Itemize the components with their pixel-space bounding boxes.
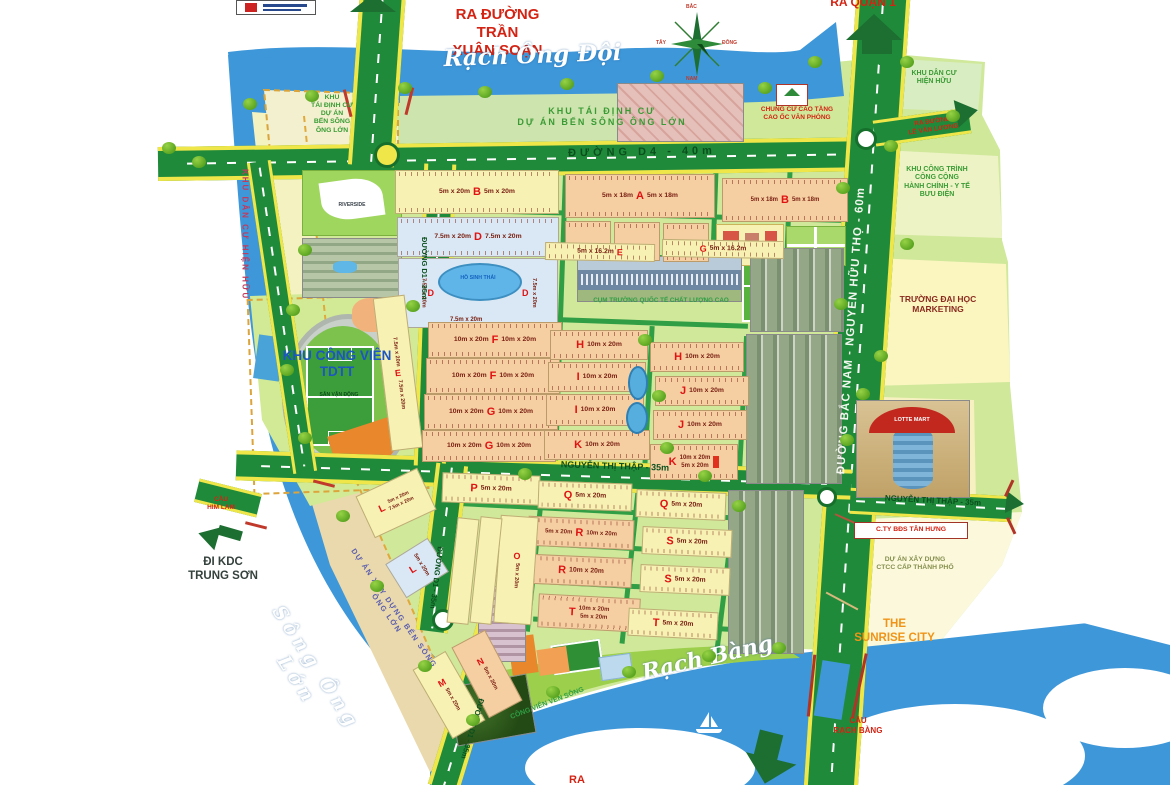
block-R1: 5m x 20mR10m x 20m xyxy=(527,516,634,551)
compass-south-label: NAM xyxy=(686,76,697,82)
tree-icon xyxy=(560,78,574,90)
zone-tdtt-label: KHU CÔNG VIÊN TDTT xyxy=(258,348,416,380)
block-dim: 10m x 20m xyxy=(454,337,489,344)
block-G2: 10m x 20mG10m x 20m xyxy=(422,430,556,462)
block-E-strip: 5m x 16.2mE xyxy=(545,242,655,262)
tree-icon xyxy=(280,364,294,376)
block-Q1: Q5m x 20m xyxy=(538,480,633,511)
block-letter: O xyxy=(513,552,521,561)
block-R2: R10m x 20m xyxy=(529,554,632,588)
block-dim: 5m x 20m xyxy=(439,189,470,196)
zone-resettle-small-label: KHU TÁI ĐỊNH CƯ DỰ ÁN BẾN SÔNG ÔNG LỚN xyxy=(272,94,392,135)
block-dim: 10m x 20m xyxy=(583,374,618,381)
exit-kdc-trung-son-label: ĐI KDC TRUNG SƠN xyxy=(162,556,284,584)
tree-icon xyxy=(336,510,350,522)
block-dim: 5m x 20m xyxy=(675,576,706,584)
zone-tan-hung-box: C.TY BĐS TÂN HƯNG xyxy=(854,522,968,539)
block-letter: B xyxy=(473,187,481,198)
compass-north-label: BẮC xyxy=(686,4,697,10)
block-dim: 5m x 18m xyxy=(647,193,678,200)
block-H1: H10m x 20m xyxy=(550,330,648,360)
international-school-photo xyxy=(577,256,742,302)
block-letter: F xyxy=(492,335,499,346)
block-letter: Q xyxy=(659,499,668,510)
tree-icon xyxy=(900,238,914,250)
tree-icon xyxy=(298,244,312,256)
block-dim: 5m x 20m xyxy=(484,189,515,196)
block-dim: 5m x 18m xyxy=(751,197,778,203)
block-dim: 10m x 20m xyxy=(452,373,487,380)
block-dim: 5m x 18m xyxy=(602,193,633,200)
block-letter: J xyxy=(680,386,686,397)
block-dim: 10m x 20m xyxy=(680,455,711,462)
arrow-stem xyxy=(862,38,892,54)
arrow-up-tran-xuan-soan xyxy=(350,0,396,12)
tree-icon xyxy=(836,182,850,194)
red-lot-marker xyxy=(713,456,719,468)
arrow-up-quan1 xyxy=(846,14,902,40)
tree-icon xyxy=(243,98,257,110)
tree-icon xyxy=(758,82,772,94)
logo-red-mark xyxy=(245,3,257,12)
block-dim: 10m x 20m xyxy=(496,443,531,450)
lake xyxy=(438,263,522,301)
tree-icon xyxy=(660,442,674,454)
block-S1: S5m x 20m xyxy=(641,526,732,558)
block-Q2: Q5m x 20m xyxy=(635,489,726,521)
condo-render-strip xyxy=(750,248,844,332)
zone-ctcc-label: DỰ ÁN XÂY DỰNG CTCC CẤP THÀNH PHỐ xyxy=(856,556,974,572)
lotte-sign-text: LOTTE MART xyxy=(894,417,929,423)
zone-san-van-dong-label: SÂN VẬN ĐỘNG xyxy=(296,392,382,398)
tree-icon xyxy=(466,714,480,726)
tree-icon xyxy=(732,500,746,512)
tree-icon xyxy=(286,304,300,316)
block-A: 5m x 18mA5m x 18m xyxy=(565,174,715,218)
block-G1: 10m x 20mG10m x 20m xyxy=(424,394,558,430)
roundabout xyxy=(374,142,400,168)
block-letter: G xyxy=(485,441,494,452)
block-letter: R xyxy=(575,527,583,538)
block-letter: F xyxy=(490,371,497,382)
block-dim: 5m x 20m xyxy=(575,492,606,500)
block-letter: B xyxy=(781,195,789,206)
lake-container: HỒ SINH THÁI 7.5m x 20m xyxy=(436,259,520,327)
block-dim: 5m x 20m xyxy=(512,563,519,588)
block-letter: R xyxy=(558,565,566,576)
tree-icon xyxy=(162,142,176,154)
riverside-building xyxy=(319,175,386,223)
road-d1-text: ĐƯỜNG D1 - 35m xyxy=(420,237,429,300)
zone-cong-trinh-label: KHU CÔNG TRÌNH CÔNG CỘNG HÀNH CHÍNH - Y … xyxy=(882,166,992,200)
tree-icon xyxy=(702,650,716,662)
pond xyxy=(626,402,648,434)
block-F1: 10m x 20mF10m x 20m xyxy=(428,322,562,358)
zone-truong-quoc-te-label: CỤM TRƯỜNG QUỐC TẾ CHẤT LƯỢNG CAO xyxy=(580,297,742,305)
block-dim: 5m x 20m xyxy=(545,528,573,535)
exit-quan1-label: RA QUẬN 1 xyxy=(808,0,918,9)
tree-icon xyxy=(808,56,822,68)
legend-logo-box xyxy=(236,0,316,15)
block-letter: I xyxy=(575,405,578,416)
sailboat-icon xyxy=(694,712,724,734)
school-building xyxy=(536,646,569,676)
logo-text-line xyxy=(263,4,307,7)
bridge-rach-bang-label: CẦU RẠCH BÀNG xyxy=(818,716,898,735)
block-letter: A xyxy=(636,191,644,202)
compass-east-label: ĐÔNG xyxy=(722,40,737,46)
tree-icon xyxy=(478,86,492,98)
block-dim: 5m x 20m xyxy=(671,501,702,509)
logo-roof-icon xyxy=(784,88,800,96)
tree-icon xyxy=(900,56,914,68)
logo-text-line xyxy=(263,9,301,11)
block-letter: I xyxy=(577,372,580,383)
zone-resettle-large-label: KHU TÁI ĐỊNH CƯ DỰ ÁN BẾN SÔNG ÔNG LỚN xyxy=(452,106,752,128)
block-dim: 10m x 20m xyxy=(585,442,620,449)
block-T1: T 10m x 20m5m x 20m xyxy=(537,593,641,632)
block-dim: 7.5m x 20m xyxy=(396,379,405,409)
zone-marketing-label: TRƯỜNG ĐẠI HỌC MARKETING xyxy=(882,294,994,314)
tree-icon xyxy=(518,468,532,480)
block-dim: 10m x 20m xyxy=(499,373,534,380)
block-dim: 10m x 20m xyxy=(587,342,622,349)
block-letter: D xyxy=(522,289,529,298)
tree-icon xyxy=(698,470,712,482)
tree-icon xyxy=(946,110,960,122)
block-T2: T5m x 20m xyxy=(627,608,718,641)
block-dim: 5m x 18m xyxy=(792,197,819,203)
condo-render-strip xyxy=(746,334,842,484)
tree-icon xyxy=(652,390,666,402)
road-d1-upper-label: ĐƯỜNG D1 - 35m xyxy=(420,218,440,334)
block-letter: S xyxy=(666,536,674,547)
block-letter: G xyxy=(700,244,707,253)
tree-icon xyxy=(370,580,384,592)
block-dim: 10m x 20m xyxy=(498,409,533,416)
tree-icon xyxy=(884,140,898,152)
tree-icon xyxy=(418,660,432,672)
tree-icon xyxy=(192,156,206,168)
block-letter: K xyxy=(574,440,582,451)
block-dim: 10m x 20m xyxy=(501,337,536,344)
block-dim: 10m x 20m xyxy=(685,354,720,361)
block-J2: J10m x 20m xyxy=(653,410,747,440)
tree-icon xyxy=(546,686,560,698)
tree-icon xyxy=(406,300,420,312)
block-dim: 5m x 16.2m xyxy=(710,245,747,252)
pond xyxy=(628,366,648,400)
block-dim: 7.5m x 20m xyxy=(531,278,537,308)
chung-cu-logo xyxy=(776,84,808,106)
block-letter: P xyxy=(470,483,478,494)
block-letter: H xyxy=(576,340,584,351)
zone-kdc-w-text: KHU DÂN CƯ HIỆN HỮU xyxy=(240,169,250,300)
block-dim: 10m x 20m xyxy=(449,409,484,416)
block-H2: H10m x 20m xyxy=(650,342,744,372)
tree-icon xyxy=(305,90,319,102)
block-G-strip: G5m x 16.2m xyxy=(662,239,784,259)
block-letter: D xyxy=(474,232,482,243)
block-letter: T xyxy=(569,606,576,617)
block-letter: E xyxy=(617,248,623,257)
block-letter: L xyxy=(378,504,388,516)
block-letter: J xyxy=(678,420,684,431)
block-letter: N xyxy=(476,657,486,668)
compass: BẮC TÂY ĐÔNG NAM xyxy=(662,4,732,84)
lake-label: HỒ SINH THÁI xyxy=(446,275,510,281)
block-dim: 10m x 20m xyxy=(569,567,604,575)
block-dim: 10m x 20m xyxy=(687,422,722,429)
tree-icon xyxy=(398,82,412,94)
block-dim: 10m x 20m xyxy=(447,443,482,450)
block-dim: 10m x 20m xyxy=(581,407,616,414)
block-dim: 10m x 20m xyxy=(689,388,724,395)
tree-icon xyxy=(834,298,848,310)
bridge-him-lam-label: CẦU HIM LAM xyxy=(192,496,250,512)
compass-west-label: TÂY xyxy=(656,40,666,46)
zone-kdc-hien-huu-w-label: KHU DÂN CƯ HIỆN HỮU xyxy=(240,150,266,430)
block-letter: H xyxy=(674,352,682,363)
zone-chung-cu-label: CHUNG CƯ CAO TẦNG CAO ỐC VĂN PHÒNG xyxy=(742,106,852,122)
tree-icon xyxy=(856,388,870,400)
block-dim: 5m x 20m xyxy=(578,613,609,621)
pool xyxy=(333,261,357,273)
block-dim: 7.5m x 20m xyxy=(485,234,522,241)
apartment-photo xyxy=(302,238,402,298)
land-plot-map: BẮC TÂY ĐÔNG NAM RA ĐƯỜNG TRẦN XUÂN SOẠN… xyxy=(0,0,1170,785)
tree-icon xyxy=(622,666,636,678)
block-dim: 5m x 16.2m xyxy=(577,248,614,255)
block-letter: G xyxy=(487,407,496,418)
riverside-label: RIVERSIDE xyxy=(322,202,382,208)
block-dim: 10m x 20m xyxy=(586,530,617,537)
tree-icon xyxy=(874,350,888,362)
roundabout xyxy=(855,128,877,150)
lotte-tower xyxy=(893,427,933,489)
block-dim: 5m x 20m xyxy=(443,688,460,712)
block-S2: S5m x 20m xyxy=(639,564,730,596)
block-B2: 5m x 18mB5m x 18m xyxy=(722,178,848,222)
lotte-arch-sign: LOTTE MART xyxy=(869,407,955,433)
tree-icon xyxy=(638,334,652,346)
zone-kdc-hien-huu-ne-label: KHU DÂN CƯ HIỆN HỮU xyxy=(886,70,982,87)
tree-icon xyxy=(840,434,854,446)
block-letter: T xyxy=(652,617,659,628)
exit-ra-south-label: RA xyxy=(562,774,592,785)
block-K1: K10m x 20m xyxy=(544,430,650,460)
block-dim: 5m x 20m xyxy=(481,485,512,493)
tree-icon xyxy=(298,432,312,444)
tree-icon xyxy=(772,642,786,654)
block-letter: Q xyxy=(564,490,573,501)
block-J1: J10m x 20m xyxy=(655,376,749,406)
zone-sunrise-label: THE SUNRISE CITY xyxy=(842,618,947,646)
block-dim: 5m x 20m xyxy=(677,538,708,546)
block-B1: 5m x 20mB5m x 20m xyxy=(395,170,559,214)
block-letter: S xyxy=(664,574,672,585)
lotte-mart-photo: LOTTE MART xyxy=(856,400,970,498)
block-dim: 5m x 20m xyxy=(662,620,693,628)
block-F2: 10m x 20mF10m x 20m xyxy=(426,358,560,394)
